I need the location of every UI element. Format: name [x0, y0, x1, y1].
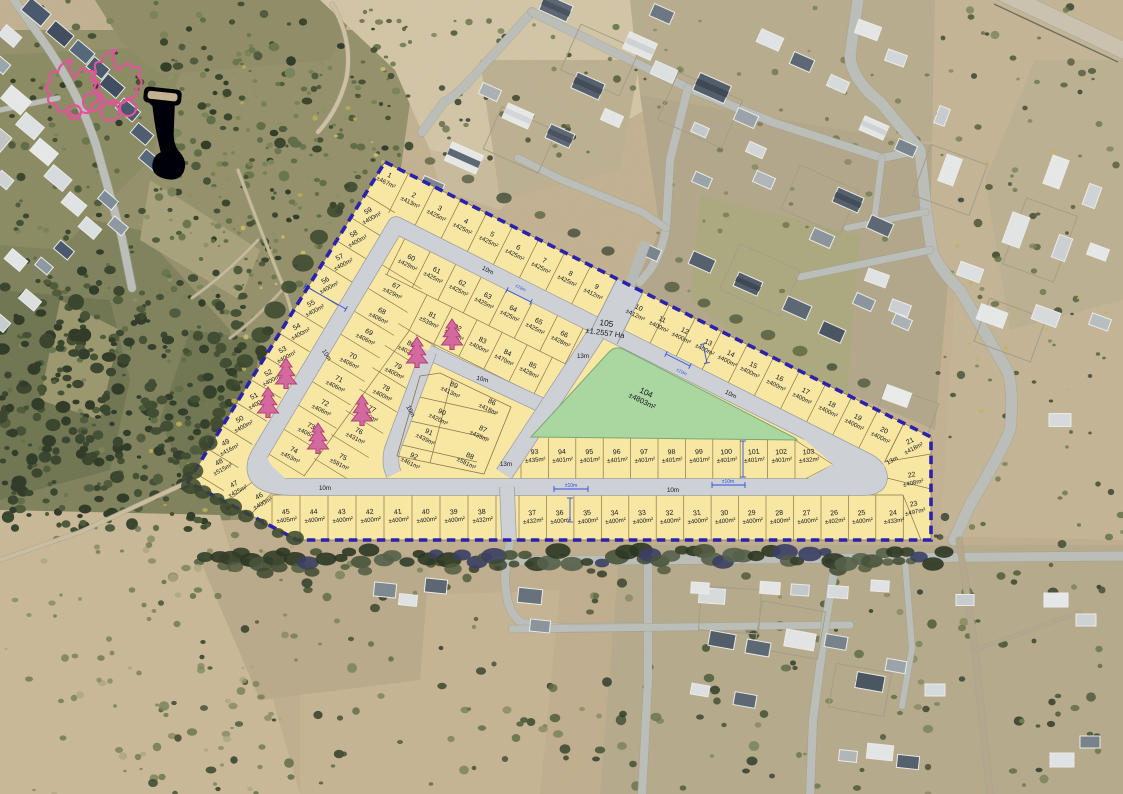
svg-text:40: 40: [422, 509, 431, 517]
svg-text:±10m: ±10m: [565, 483, 577, 489]
svg-text:42: 42: [366, 509, 375, 517]
svg-text:99: 99: [695, 449, 703, 457]
svg-text:10m: 10m: [319, 485, 331, 492]
svg-text:34: 34: [610, 510, 619, 518]
svg-text:95: 95: [585, 449, 593, 457]
svg-text:94: 94: [558, 449, 566, 457]
svg-text:98: 98: [667, 449, 675, 457]
svg-text:102: 102: [775, 449, 787, 457]
svg-text:25: 25: [857, 510, 866, 518]
svg-text:44: 44: [310, 509, 319, 517]
svg-text:103: 103: [802, 449, 814, 457]
svg-text:37: 37: [528, 510, 537, 518]
svg-text:101: 101: [748, 449, 760, 457]
svg-text:38: 38: [478, 509, 487, 517]
svg-text:29: 29: [748, 510, 757, 518]
svg-text:93: 93: [530, 449, 538, 457]
svg-text:24: 24: [889, 510, 898, 518]
svg-text:±10m: ±10m: [722, 479, 734, 485]
svg-text:39: 39: [450, 509, 459, 517]
svg-text:100: 100: [720, 449, 732, 457]
svg-text:31: 31: [693, 510, 702, 518]
svg-text:26: 26: [830, 510, 839, 518]
svg-text:32: 32: [665, 510, 674, 518]
svg-text:28: 28: [775, 510, 784, 518]
svg-text:13m: 13m: [500, 461, 512, 468]
svg-text:97: 97: [640, 449, 648, 457]
svg-text:27: 27: [802, 510, 811, 518]
svg-text:36: 36: [555, 510, 564, 518]
svg-text:35: 35: [583, 510, 592, 518]
svg-text:96: 96: [613, 449, 621, 457]
svg-text:45: 45: [282, 509, 291, 517]
svg-text:10m: 10m: [667, 487, 679, 494]
svg-text:33: 33: [638, 510, 647, 518]
svg-text:43: 43: [338, 509, 347, 517]
svg-text:13m: 13m: [577, 353, 589, 360]
svg-text:30: 30: [720, 510, 729, 518]
svg-text:41: 41: [394, 509, 403, 517]
